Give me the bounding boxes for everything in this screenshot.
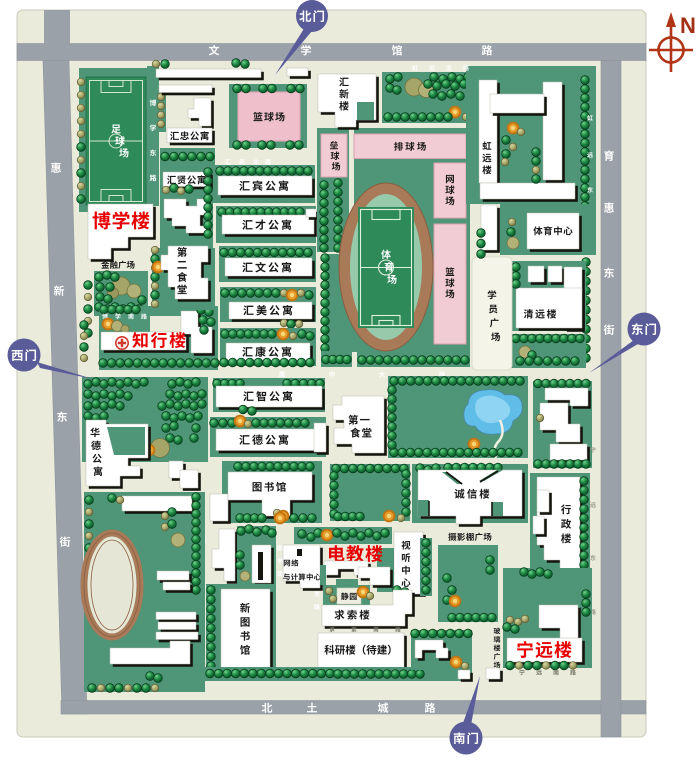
svg-text:N: N [680, 13, 696, 38]
